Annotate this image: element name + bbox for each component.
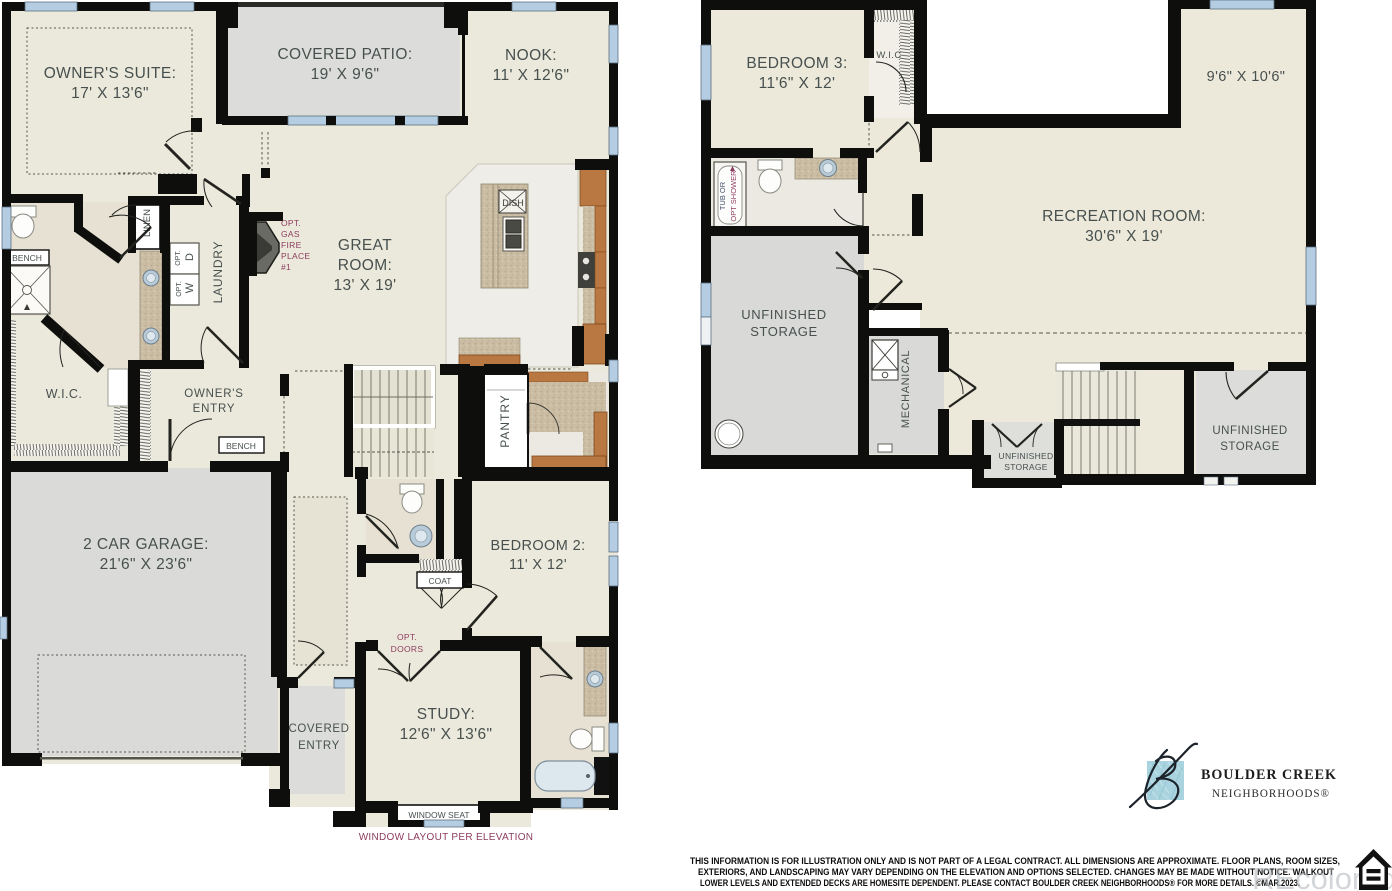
svg-text:PLACE: PLACE bbox=[281, 251, 310, 261]
svg-text:STORAGE: STORAGE bbox=[1004, 462, 1048, 472]
svg-text:12'6" X 13'6": 12'6" X 13'6" bbox=[400, 726, 493, 743]
svg-text:#1: #1 bbox=[281, 262, 291, 272]
svg-text:W.I.C.: W.I.C. bbox=[46, 387, 82, 401]
svg-text:STORAGE: STORAGE bbox=[750, 324, 818, 339]
svg-text:OPT.: OPT. bbox=[175, 250, 182, 266]
svg-text:BEDROOM 3:: BEDROOM 3: bbox=[746, 55, 847, 72]
svg-text:LAUNDRY: LAUNDRY bbox=[211, 241, 225, 304]
svg-text:ROOM:: ROOM: bbox=[338, 257, 393, 274]
svg-text:OWNER'S: OWNER'S bbox=[184, 388, 244, 400]
svg-text:OPT SHOWER: OPT SHOWER bbox=[729, 170, 738, 222]
svg-text:LOWER LEVELS AND EXTENDED DECK: LOWER LEVELS AND EXTENDED DECKS ARE HOME… bbox=[700, 878, 1300, 889]
svg-text:11' X 12': 11' X 12' bbox=[509, 557, 567, 573]
svg-text:OPT.: OPT. bbox=[281, 218, 301, 228]
svg-text:TUB OR: TUB OR bbox=[718, 181, 727, 210]
svg-text:STORAGE: STORAGE bbox=[1220, 441, 1280, 453]
svg-text:BOULDER CREEK: BOULDER CREEK bbox=[1201, 767, 1337, 783]
svg-text:17' X 13'6": 17' X 13'6" bbox=[71, 85, 149, 102]
svg-text:NEIGHBORHOODS®: NEIGHBORHOODS® bbox=[1212, 788, 1330, 800]
svg-text:UNFINISHED: UNFINISHED bbox=[741, 307, 826, 322]
svg-text:PANTRY: PANTRY bbox=[498, 394, 512, 448]
svg-text:FIRE: FIRE bbox=[281, 240, 302, 250]
svg-text:11'6" X 12': 11'6" X 12' bbox=[759, 75, 836, 92]
svg-text:GAS: GAS bbox=[281, 229, 300, 239]
svg-text:BEDROOM 2:: BEDROOM 2: bbox=[490, 538, 585, 554]
svg-text:OPT.: OPT. bbox=[397, 632, 417, 642]
svg-text:COAT: COAT bbox=[429, 576, 452, 586]
svg-text:OWNER'S SUITE:: OWNER'S SUITE: bbox=[44, 65, 177, 82]
svg-text:ENTRY: ENTRY bbox=[193, 403, 236, 415]
svg-text:13' X 19': 13' X 19' bbox=[334, 277, 397, 294]
svg-text:GREAT: GREAT bbox=[338, 237, 392, 254]
svg-text:COVERED PATIO:: COVERED PATIO: bbox=[277, 46, 412, 63]
svg-text:OPT.: OPT. bbox=[176, 281, 183, 297]
svg-text:UNFINISHED: UNFINISHED bbox=[1212, 425, 1287, 437]
svg-text:11' X 12'6": 11' X 12'6" bbox=[493, 67, 570, 84]
svg-text:D: D bbox=[184, 253, 196, 261]
svg-text:WINDOW SEAT: WINDOW SEAT bbox=[408, 810, 469, 820]
svg-text:21'6" X 23'6": 21'6" X 23'6" bbox=[100, 556, 193, 573]
svg-text:THIS INFORMATION IS FOR ILLUST: THIS INFORMATION IS FOR ILLUSTRATION ONL… bbox=[690, 856, 1340, 867]
svg-text:DOORS: DOORS bbox=[391, 644, 424, 654]
svg-text:STUDY:: STUDY: bbox=[417, 706, 475, 723]
svg-text:19' X 9'6": 19' X 9'6" bbox=[311, 66, 380, 83]
svg-text:NOOK:: NOOK: bbox=[505, 47, 557, 64]
svg-text:W: W bbox=[184, 282, 196, 293]
svg-text:EXTERIORS, AND LANDSCAPING MAY: EXTERIORS, AND LANDSCAPING MAY VARY DEPE… bbox=[698, 867, 1334, 878]
svg-text:W.I.C: W.I.C bbox=[876, 50, 901, 61]
svg-text:9'6" X 10'6": 9'6" X 10'6" bbox=[1207, 69, 1286, 85]
svg-text:BENCH: BENCH bbox=[12, 253, 42, 263]
svg-text:30'6" X 19': 30'6" X 19' bbox=[1085, 228, 1163, 245]
svg-text:2 CAR GARAGE:: 2 CAR GARAGE: bbox=[83, 536, 209, 553]
svg-text:DISH: DISH bbox=[502, 198, 524, 208]
svg-text:UNFINISHED: UNFINISHED bbox=[999, 451, 1054, 461]
svg-text:BENCH: BENCH bbox=[226, 441, 256, 451]
svg-text:COVERED: COVERED bbox=[288, 723, 349, 735]
svg-text:RECREATION ROOM:: RECREATION ROOM: bbox=[1042, 208, 1206, 225]
svg-text:WINDOW LAYOUT PER ELEVATION: WINDOW LAYOUT PER ELEVATION bbox=[359, 832, 534, 843]
svg-text:MECHANICAL: MECHANICAL bbox=[900, 350, 912, 428]
svg-text:ENTRY: ENTRY bbox=[298, 740, 340, 752]
